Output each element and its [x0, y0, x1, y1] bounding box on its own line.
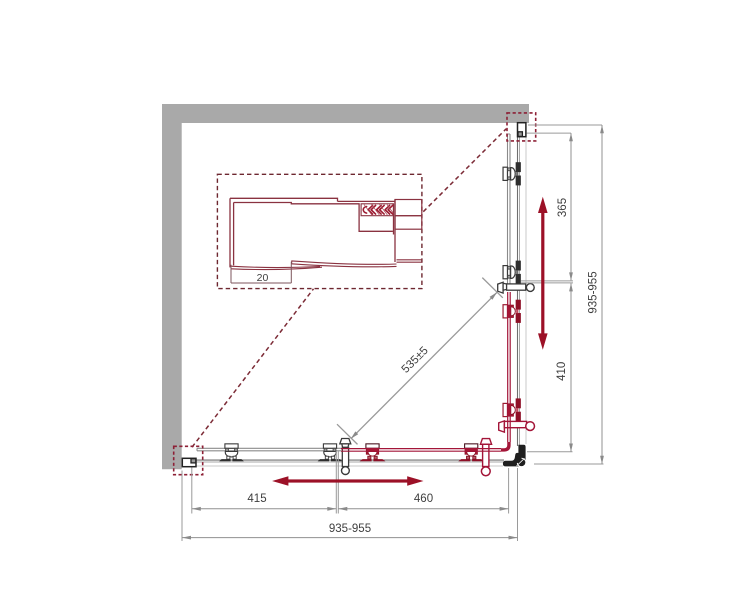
svg-text:365: 365 [557, 198, 569, 217]
svg-text:460: 460 [414, 493, 433, 505]
svg-text:535±5: 535±5 [400, 345, 431, 376]
svg-text:415: 415 [247, 493, 266, 505]
svg-text:20: 20 [257, 272, 269, 284]
svg-text:935-955: 935-955 [329, 523, 371, 535]
svg-text:410: 410 [556, 362, 568, 381]
svg-text:935-955: 935-955 [588, 271, 600, 313]
